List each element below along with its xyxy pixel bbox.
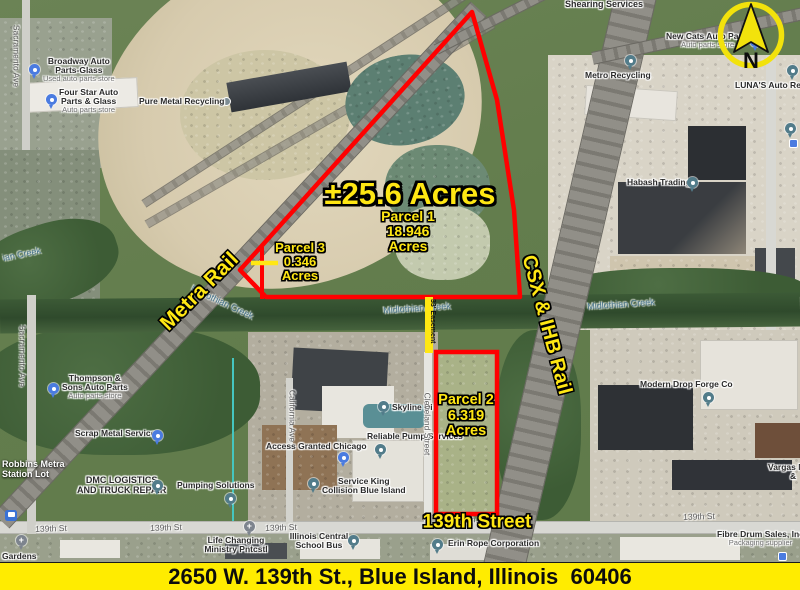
satellite-map: Broadway Auto Parts-Glass Used auto part… [0, 0, 800, 562]
north-compass: N [705, 0, 800, 79]
aerial-parcel-map: Broadway Auto Parts-Glass Used auto part… [0, 0, 800, 590]
north-arrow-icon [734, 4, 768, 52]
parcel-2-label: Parcel 2 6.319 Acres [438, 393, 494, 440]
address-text: 2650 W. 139th St., Blue Island, Illinois… [168, 564, 631, 590]
total-acres-label: ±25.6 Acres [325, 177, 496, 210]
parcel-1-label: Parcel 1 18.946 Acres [381, 209, 435, 254]
parcel-3-label: Parcel 3 0.346 Acres [275, 241, 325, 283]
easement-label: 33' Easement [429, 299, 436, 344]
parcel-overlay: 33' Easement [0, 0, 800, 562]
139th-street-label: 139th Street [423, 513, 532, 534]
address-banner: 2650 W. 139th St., Blue Island, Illinois… [0, 562, 800, 590]
compass-n-letter: N [743, 48, 759, 73]
